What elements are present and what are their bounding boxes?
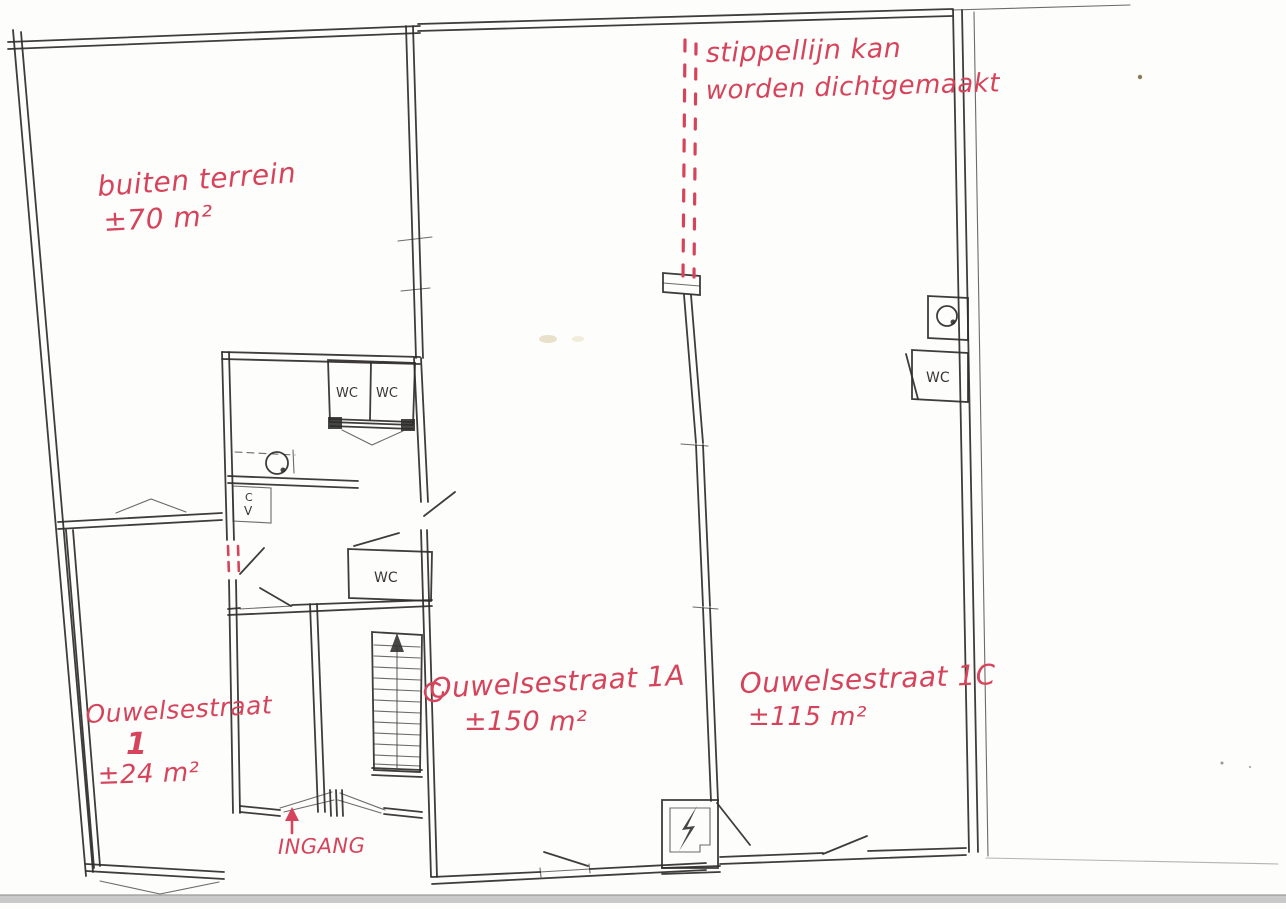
wall-top-extension xyxy=(952,5,1130,10)
entrance xyxy=(240,790,422,833)
stairwell-left-wall-a xyxy=(310,604,318,812)
wall-1c-bottom-left xyxy=(720,853,823,857)
block-lower-wall-a1 xyxy=(228,608,240,609)
stippellijn-stroke-right xyxy=(694,44,696,277)
door-leaf-hall xyxy=(260,588,291,606)
wc-label-mid: WC xyxy=(374,570,398,586)
wall-header-box-inner xyxy=(663,283,700,286)
wall-1a-left-upper-a xyxy=(414,358,421,502)
central-wall-seg1-b xyxy=(691,295,703,443)
entrance-wall-right-a xyxy=(384,808,422,812)
wc-cubicles-divider xyxy=(370,362,371,420)
entrance-wall-right-b xyxy=(384,814,422,818)
wall-joint-tick-2 xyxy=(401,288,430,291)
stairwell xyxy=(310,604,443,812)
wc-label-1c: WC xyxy=(926,370,950,386)
door-swing-divider xyxy=(116,499,186,513)
door-leaf-meter-box xyxy=(717,803,750,845)
door-post-1a-right xyxy=(589,864,590,873)
floor-plan-canvas: WC WC C V WC xyxy=(0,0,1286,909)
central-wall-seg3-a xyxy=(703,608,711,801)
wc-cubicles-bottom-b xyxy=(330,426,413,429)
central-wall-joint2 xyxy=(693,607,718,609)
wall-right-outer xyxy=(953,9,969,852)
door-leaf-1c-bottom xyxy=(823,836,867,854)
wall-1a-left-upper-b xyxy=(421,358,428,502)
door-swing-unit1-bottom xyxy=(100,881,219,894)
wall-top-left-inner xyxy=(8,33,420,49)
wall-unit1-bottom-outer xyxy=(86,864,224,872)
scanner-bottom-edge xyxy=(0,895,1286,903)
size-buiten-terrein: ±70 m² xyxy=(103,199,214,238)
wall-1a-bottom-left xyxy=(432,872,540,877)
label-unit1-number: 1 xyxy=(126,727,147,762)
wall-unit1-bottom-inner xyxy=(86,871,224,879)
toilet-room-bottom-a xyxy=(228,476,358,481)
door-leaf-wc-mid xyxy=(354,533,399,546)
toilet-bowl-1c-dot xyxy=(951,320,956,325)
entrance-wall-left-b xyxy=(240,812,280,816)
counter-end-tick xyxy=(293,450,294,473)
wall-top-left-outer xyxy=(8,26,420,42)
door-threshold-1a xyxy=(540,869,590,872)
note-stippellijn-line1: stippellijn kan xyxy=(705,33,901,69)
stairs-up-arrow-icon xyxy=(390,633,404,652)
wall-joint-tick-1 xyxy=(398,237,432,241)
unit1-walls xyxy=(58,499,222,868)
door-post-1a-left xyxy=(540,868,541,877)
wall-buitenterrein-1a xyxy=(398,26,432,358)
paper-smudge-1 xyxy=(539,335,557,343)
counter-line xyxy=(235,452,295,455)
outer-walls xyxy=(8,5,1278,876)
ink-speck-2 xyxy=(1221,762,1224,765)
bottom-walls xyxy=(86,836,966,894)
central-wall-seg3-b xyxy=(710,608,718,801)
red-dashed-line xyxy=(683,40,696,277)
label-ingang: INGANG xyxy=(278,833,366,859)
wall-1a-left xyxy=(414,358,455,877)
wc-label-left: WC xyxy=(336,386,358,401)
block-left-wall-upper-a xyxy=(222,352,227,540)
wall-top-main-outer xyxy=(418,9,952,24)
central-wall-seg2-b xyxy=(703,445,710,606)
wall-top-main-inner xyxy=(418,16,952,31)
wall-1c-bottom-right xyxy=(868,848,966,851)
staircase xyxy=(372,632,422,777)
door-leaf-1a-left xyxy=(424,492,455,516)
stippellijn-stroke-left xyxy=(683,40,685,277)
wall-left-outer xyxy=(13,30,86,876)
stairwell-left-wall-b xyxy=(317,604,325,812)
ink-speck-3 xyxy=(1249,766,1251,768)
unit1-inner-wall-b xyxy=(73,530,100,866)
wall-left-inner xyxy=(21,32,93,872)
label-unit1c: Ouwelsestraat 1C xyxy=(739,658,996,700)
central-dividing-wall xyxy=(663,273,718,801)
wc-doors-swing-v xyxy=(342,430,403,445)
size-unit1a: ±150 m² xyxy=(464,706,587,737)
entrance-wall-left-a xyxy=(240,806,280,810)
label-unit1-street: Ouwelsestraat xyxy=(85,690,274,729)
ground-line-right xyxy=(986,858,1278,864)
paper-smudge-2 xyxy=(572,336,584,342)
note-stippellijn-line2: worden dichtgemaakt xyxy=(705,68,1000,106)
size-unit1c: ±115 m² xyxy=(748,702,867,732)
wc-door-post-right xyxy=(401,419,415,431)
red-door-mark-right xyxy=(238,546,239,576)
wc-label-right: WC xyxy=(376,386,398,401)
door-leaf-hall-left xyxy=(240,548,264,574)
lightning-bolt-icon xyxy=(679,806,697,851)
door-threshold-hall xyxy=(240,606,292,609)
central-wall-seg1-a xyxy=(684,295,696,443)
label-buiten-terrein: buiten terrein xyxy=(96,156,297,203)
wall-1a-bottom-inner xyxy=(432,870,706,884)
scanned-floor-plan-page: WC WC C V WC xyxy=(0,0,1286,909)
central-wall-joint1 xyxy=(681,444,708,446)
size-unit1: ±24 m² xyxy=(97,757,200,791)
toilet-box-1c xyxy=(928,296,968,340)
block-lower-wall-a2 xyxy=(292,600,432,605)
handwritten-annotations: stippellijn kan worden dichtgemaakt buit… xyxy=(85,33,1001,859)
block-top-wall-a xyxy=(222,352,420,357)
ink-speck-1 xyxy=(1138,75,1142,79)
wc-hall-block: WC WC C V WC xyxy=(222,352,432,813)
block-lower-wall-b xyxy=(228,606,432,615)
wc-door-post-left xyxy=(328,417,342,429)
cv-label-bottom: V xyxy=(244,504,253,518)
toilet-bowl-dot xyxy=(281,468,286,473)
door-leaf-1a-bottom xyxy=(544,852,588,866)
cv-label-top: C xyxy=(245,491,253,504)
label-unit1a: Ouwelsestraat 1A xyxy=(429,659,686,705)
stairs-bottom-b xyxy=(372,775,422,777)
red-door-mark-left xyxy=(228,546,229,576)
central-wall-seg2-a xyxy=(696,445,703,606)
